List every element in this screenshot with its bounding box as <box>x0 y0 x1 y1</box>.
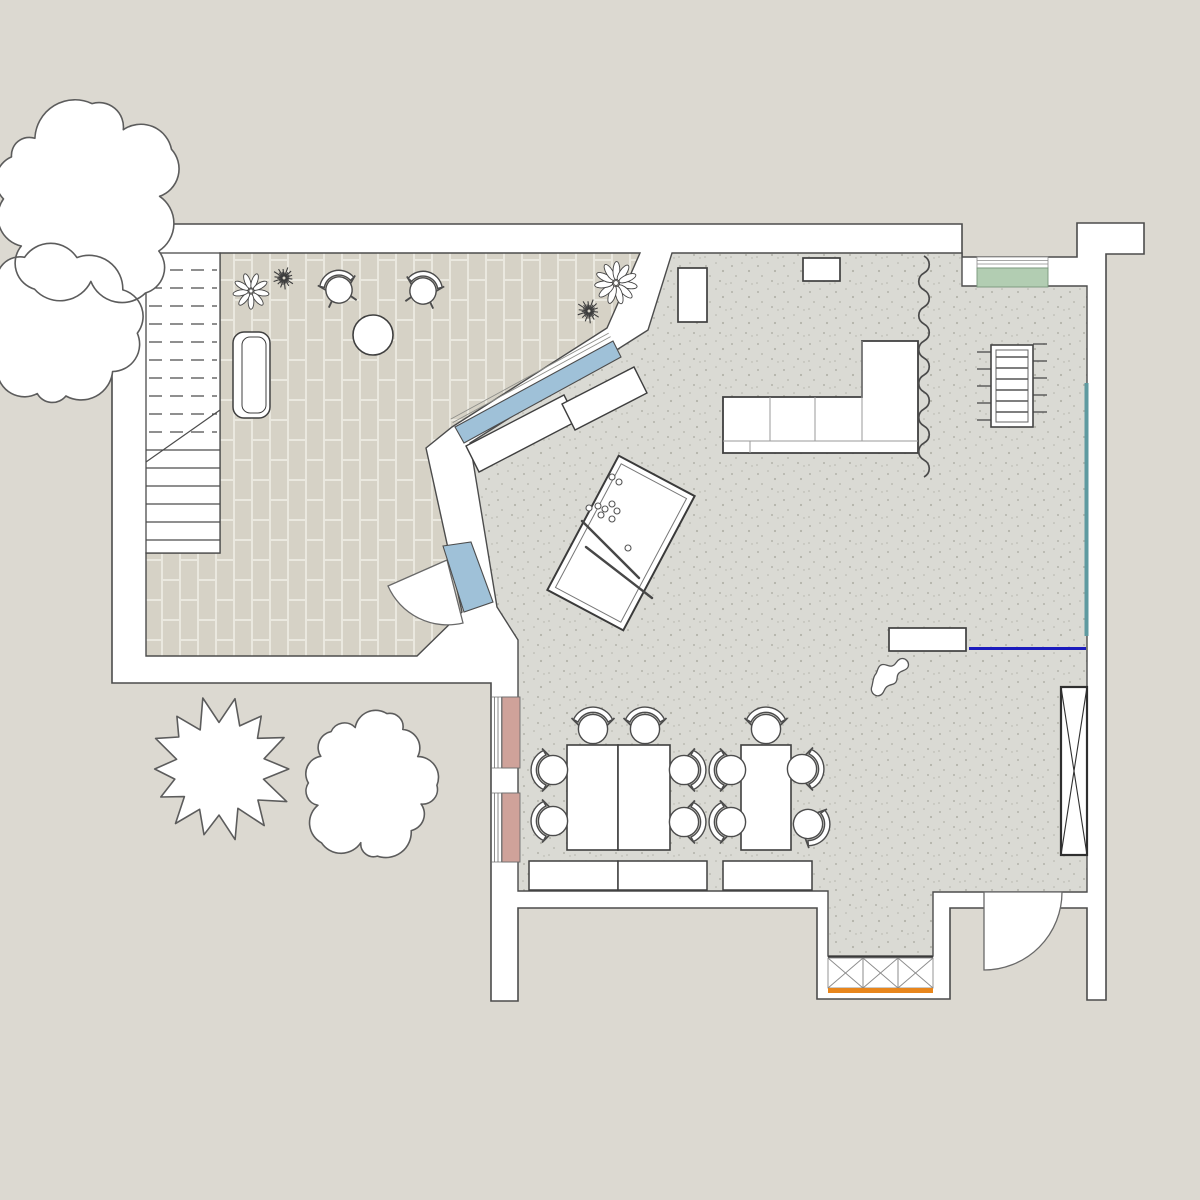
wardrobe-crossed <box>1061 687 1087 855</box>
curtain-teal-strip <box>1085 383 1089 636</box>
dining-table <box>618 745 670 850</box>
staircase <box>146 253 220 553</box>
terrace-round-table <box>353 315 393 355</box>
floor-plan-canvas <box>0 0 1200 1200</box>
wall-cabinet <box>803 258 840 281</box>
storage-bench <box>529 861 618 890</box>
wall-shelf <box>889 628 966 651</box>
storage-bench <box>723 861 812 890</box>
accent-blue-rail <box>969 647 1086 650</box>
tall-cabinet <box>678 268 707 322</box>
dining-table <box>567 745 618 850</box>
storage-bench <box>618 861 707 890</box>
dining-table <box>741 745 791 850</box>
window-green <box>977 257 1048 287</box>
terrace-bench <box>233 332 270 418</box>
